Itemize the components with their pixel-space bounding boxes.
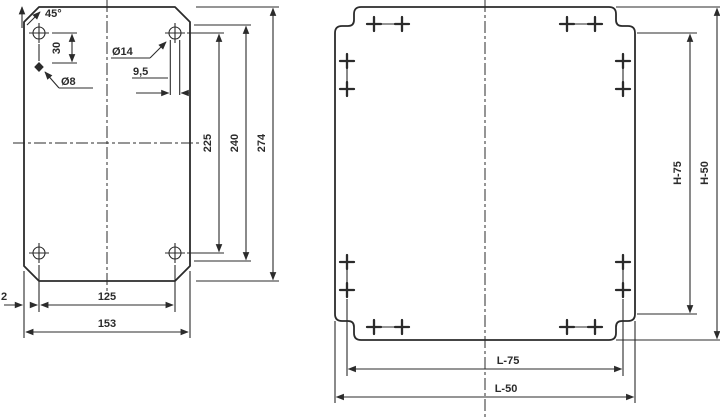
label-dia-8-text: Ø8 bbox=[61, 76, 76, 88]
dim-chamfer-angle-label: 45° bbox=[45, 8, 62, 20]
dim-h-50: H-50 bbox=[616, 7, 720, 340]
dim-9-5-label: 9,5 bbox=[133, 66, 148, 78]
dim-153: 153 bbox=[26, 318, 188, 332]
dim-h-50-label: H-50 bbox=[699, 161, 711, 185]
dim-225-label: 225 bbox=[202, 134, 214, 152]
dim-125: 125 bbox=[41, 291, 173, 305]
technical-drawing-canvas: 45° 30 Ø8 Ø14 9,5 bbox=[0, 0, 720, 417]
dim-edge-offset-2: 2 bbox=[1, 291, 37, 305]
label-dia-14: Ø14 bbox=[111, 42, 166, 58]
dim-l-75-label: L-75 bbox=[497, 355, 520, 367]
corner-hole-icon bbox=[165, 23, 185, 43]
dim-125-label: 125 bbox=[98, 291, 116, 303]
dim-240-label: 240 bbox=[229, 134, 241, 152]
right-plate: H-75 H-50 L-75 L-50 bbox=[335, 0, 720, 417]
dim-h-75: H-75 bbox=[637, 33, 697, 314]
dim-274-label: 274 bbox=[256, 133, 268, 152]
mounting-hole-crosses-top-right bbox=[560, 17, 630, 96]
dim-30-label: 30 bbox=[51, 42, 63, 54]
corner-hole-icon bbox=[165, 243, 185, 263]
corner-hole-icon bbox=[29, 243, 49, 263]
dim-h-75-label: H-75 bbox=[672, 161, 684, 185]
label-dia-14-text: Ø14 bbox=[112, 46, 134, 58]
dim-153-label: 153 bbox=[98, 318, 116, 330]
dim-hole-offset-30: 30 bbox=[51, 33, 77, 63]
dim-l-50-label: L-50 bbox=[495, 383, 518, 395]
corner-hole-icon bbox=[29, 23, 49, 43]
mounting-plates-drawing: 45° 30 Ø8 Ø14 9,5 bbox=[0, 0, 720, 417]
mounting-hole-crosses-top-left bbox=[340, 17, 409, 96]
left-plate: 45° 30 Ø8 Ø14 9,5 bbox=[1, 0, 279, 338]
pilot-hole-icon bbox=[34, 62, 44, 72]
dim-2-label: 2 bbox=[1, 291, 7, 303]
label-dia-8: Ø8 bbox=[45, 72, 93, 88]
